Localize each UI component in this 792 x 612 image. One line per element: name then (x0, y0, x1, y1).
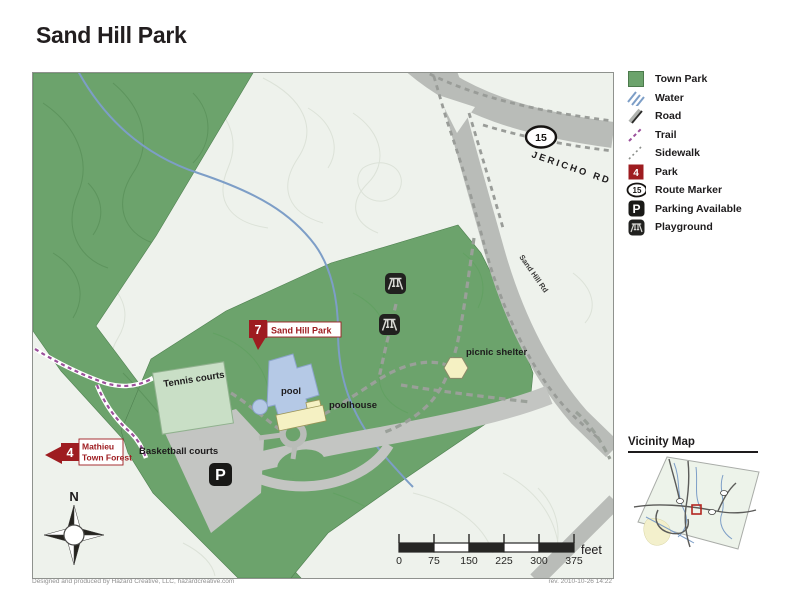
basketball-courts-label: Basketball courts (139, 446, 218, 457)
vicinity-map-graphic (626, 453, 764, 555)
legend-item-trail: Trail (626, 126, 792, 145)
parking-square-icon: P (626, 200, 646, 218)
legend-item-playground: Playground (626, 218, 792, 237)
sidewalk-dots-icon (626, 144, 646, 162)
legend-item-park: 4 Park (626, 163, 792, 182)
park-marker-4-label-line2: Town Forest (82, 453, 132, 463)
pool-label: pool (281, 386, 301, 397)
scale-unit-label: feet (581, 543, 602, 557)
park-marker-4-label-line1: Mathieu (82, 442, 114, 452)
scale-tick-225: 225 (495, 555, 513, 567)
compass-rose: N (44, 489, 104, 565)
park-map-canvas: Tennis courts pool poolhouse picnic shel… (33, 73, 613, 578)
park-marker-7-number: 7 (255, 323, 262, 337)
water-lines-icon (626, 89, 646, 107)
park-marker-icon: 4 (626, 163, 646, 181)
scale-tick-150: 150 (460, 555, 478, 567)
playground-icon (379, 314, 400, 335)
credit-line: Designed and produced by Hazard Creative… (32, 578, 234, 585)
kiddie-pool (253, 400, 268, 415)
parking-icon: P (209, 463, 232, 486)
trail-dashes-icon (626, 126, 646, 144)
park-map: Tennis courts pool poolhouse picnic shel… (32, 72, 614, 579)
sand-hill-rd-label: Sand Hill Rd (517, 253, 550, 295)
svg-text:P: P (215, 467, 226, 484)
legend-item-sidewalk: Sidewalk (626, 144, 792, 163)
svg-text:P: P (632, 202, 640, 216)
road-line-icon (626, 107, 646, 125)
scale-tick-0: 0 (396, 555, 402, 567)
legend: Town Park Water Road Trail (626, 70, 792, 237)
route-marker-15-text: 15 (535, 132, 547, 144)
vicinity-map-section: Vicinity Map (626, 436, 766, 560)
legend-item-water: Water (626, 89, 792, 108)
town-park-swatch-icon (626, 70, 646, 88)
playground-icon (385, 273, 406, 294)
jericho-rd-label: JERICHO RD (530, 149, 613, 187)
park-marker-7-label: Sand Hill Park (271, 326, 333, 336)
revision-stamp: rev. 2010-10-26 14:22 (432, 578, 612, 585)
park-marker-4-number: 4 (67, 446, 74, 460)
svg-text:15: 15 (633, 186, 642, 195)
svg-text:4: 4 (633, 168, 639, 179)
compass-north-label: N (69, 489, 78, 504)
legend-item-town-park: Town Park (626, 70, 792, 89)
route-oval-icon: 15 (626, 181, 646, 199)
legend-item-parking: P Parking Available (626, 200, 792, 219)
picnic-shelter-label: picnic shelter (466, 347, 528, 358)
playground-square-icon (626, 218, 646, 236)
scale-tick-300: 300 (530, 555, 548, 567)
poolhouse-label: poolhouse (329, 400, 377, 411)
legend-item-road: Road (626, 107, 792, 126)
page-title: Sand Hill Park (36, 22, 186, 49)
vicinity-map-title: Vicinity Map (628, 436, 766, 448)
legend-item-route-marker: 15 Route Marker (626, 181, 792, 200)
park-marker-4: 4 Mathieu Town Forest (45, 439, 132, 465)
scale-tick-75: 75 (428, 555, 440, 567)
